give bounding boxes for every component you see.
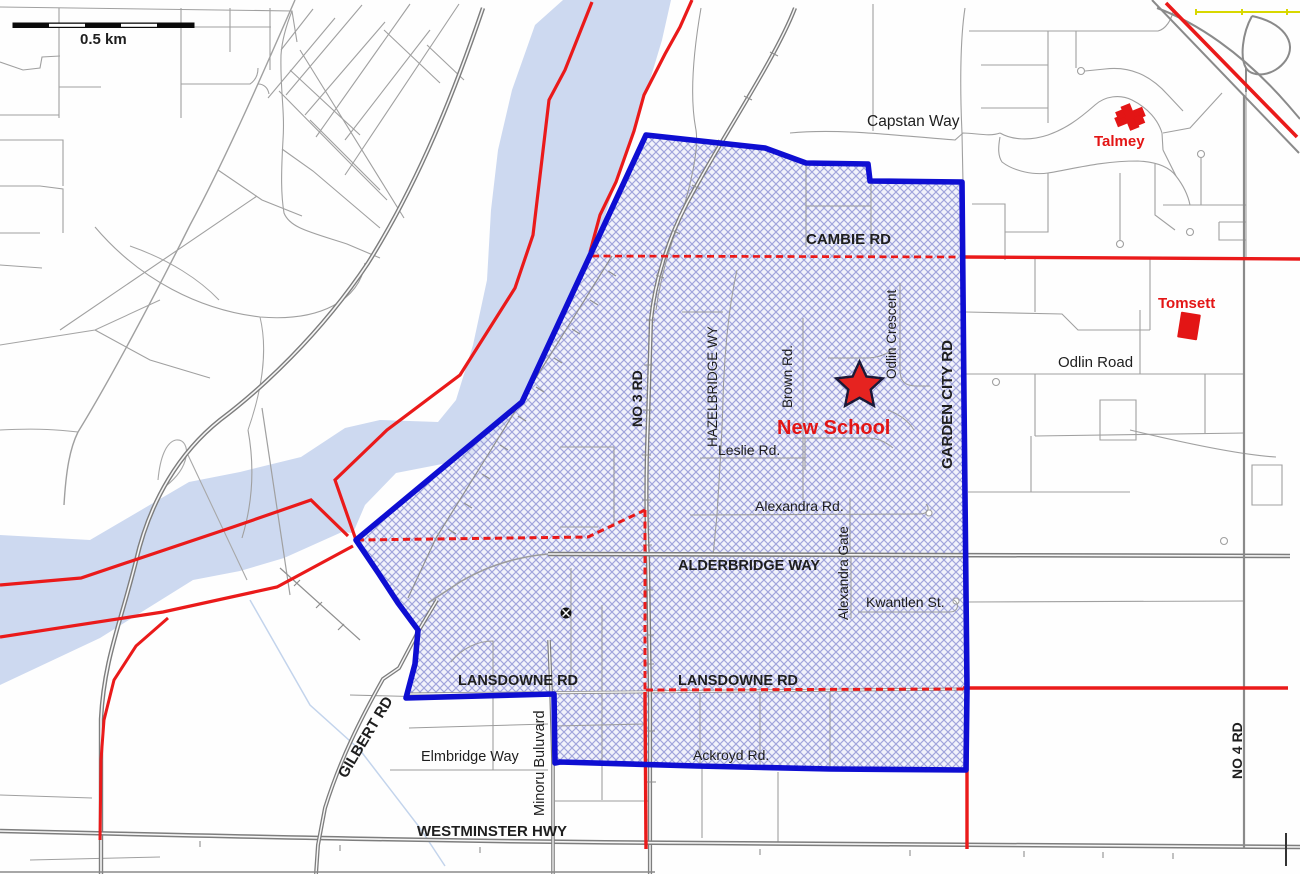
svg-text:NO 3 RD: NO 3 RD bbox=[629, 370, 645, 427]
svg-text:Odlin Crescent: Odlin Crescent bbox=[884, 289, 899, 379]
svg-text:CAMBIE RD: CAMBIE RD bbox=[806, 231, 891, 248]
svg-text:0.5 km: 0.5 km bbox=[80, 31, 127, 48]
svg-text:ALDERBRIDGE WAY: ALDERBRIDGE WAY bbox=[678, 558, 820, 574]
svg-text:Alexandra Gate: Alexandra Gate bbox=[836, 526, 851, 620]
svg-text:Talmey: Talmey bbox=[1094, 133, 1145, 150]
svg-text:Ackroyd Rd.: Ackroyd Rd. bbox=[693, 747, 769, 763]
svg-text:Alexandra Rd.: Alexandra Rd. bbox=[755, 498, 844, 514]
svg-text:Minoru Buluvard: Minoru Buluvard bbox=[532, 710, 548, 816]
svg-text:LANSDOWNE RD: LANSDOWNE RD bbox=[678, 673, 798, 689]
svg-text:WESTMINSTER HWY: WESTMINSTER HWY bbox=[417, 823, 567, 840]
svg-text:Capstan Way: Capstan Way bbox=[867, 113, 960, 130]
svg-text:LANSDOWNE RD: LANSDOWNE RD bbox=[458, 673, 578, 689]
svg-text:NO 4 RD: NO 4 RD bbox=[1229, 722, 1245, 779]
svg-text:Brown Rd.: Brown Rd. bbox=[780, 345, 795, 408]
svg-text:GARDEN CITY RD: GARDEN CITY RD bbox=[939, 340, 956, 469]
svg-text:Elmbridge Way: Elmbridge Way bbox=[421, 749, 520, 765]
svg-text:Kwantlen St.: Kwantlen St. bbox=[866, 594, 945, 610]
svg-text:Leslie Rd.: Leslie Rd. bbox=[718, 442, 780, 458]
svg-text:New School: New School bbox=[777, 417, 890, 439]
svg-text:Tomsett: Tomsett bbox=[1158, 295, 1215, 312]
svg-text:Odlin Road: Odlin Road bbox=[1058, 354, 1133, 371]
svg-text:HAZELBRIDGE WY: HAZELBRIDGE WY bbox=[705, 326, 720, 447]
